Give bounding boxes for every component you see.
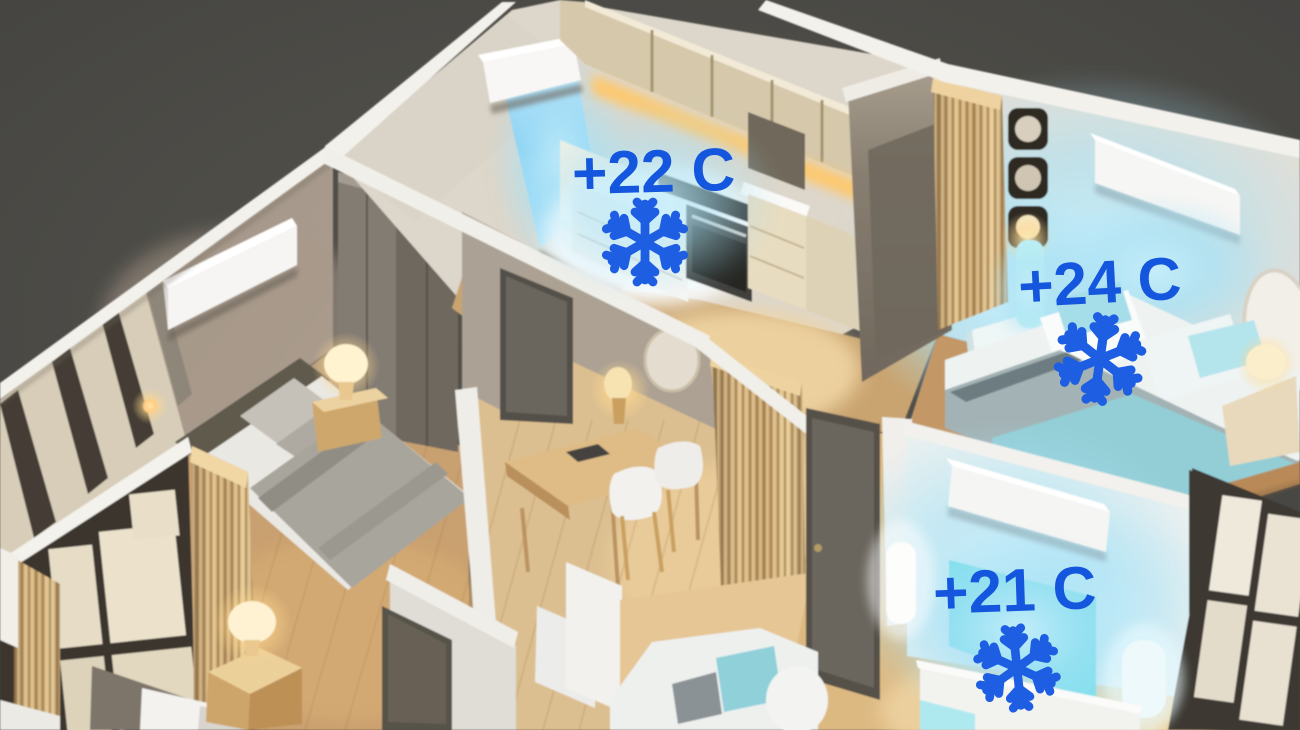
svg-text:+21 C: +21 C xyxy=(932,553,1097,627)
svg-text:+24 C: +24 C xyxy=(1016,244,1182,320)
svg-text:+22 C: +22 C xyxy=(571,135,736,207)
